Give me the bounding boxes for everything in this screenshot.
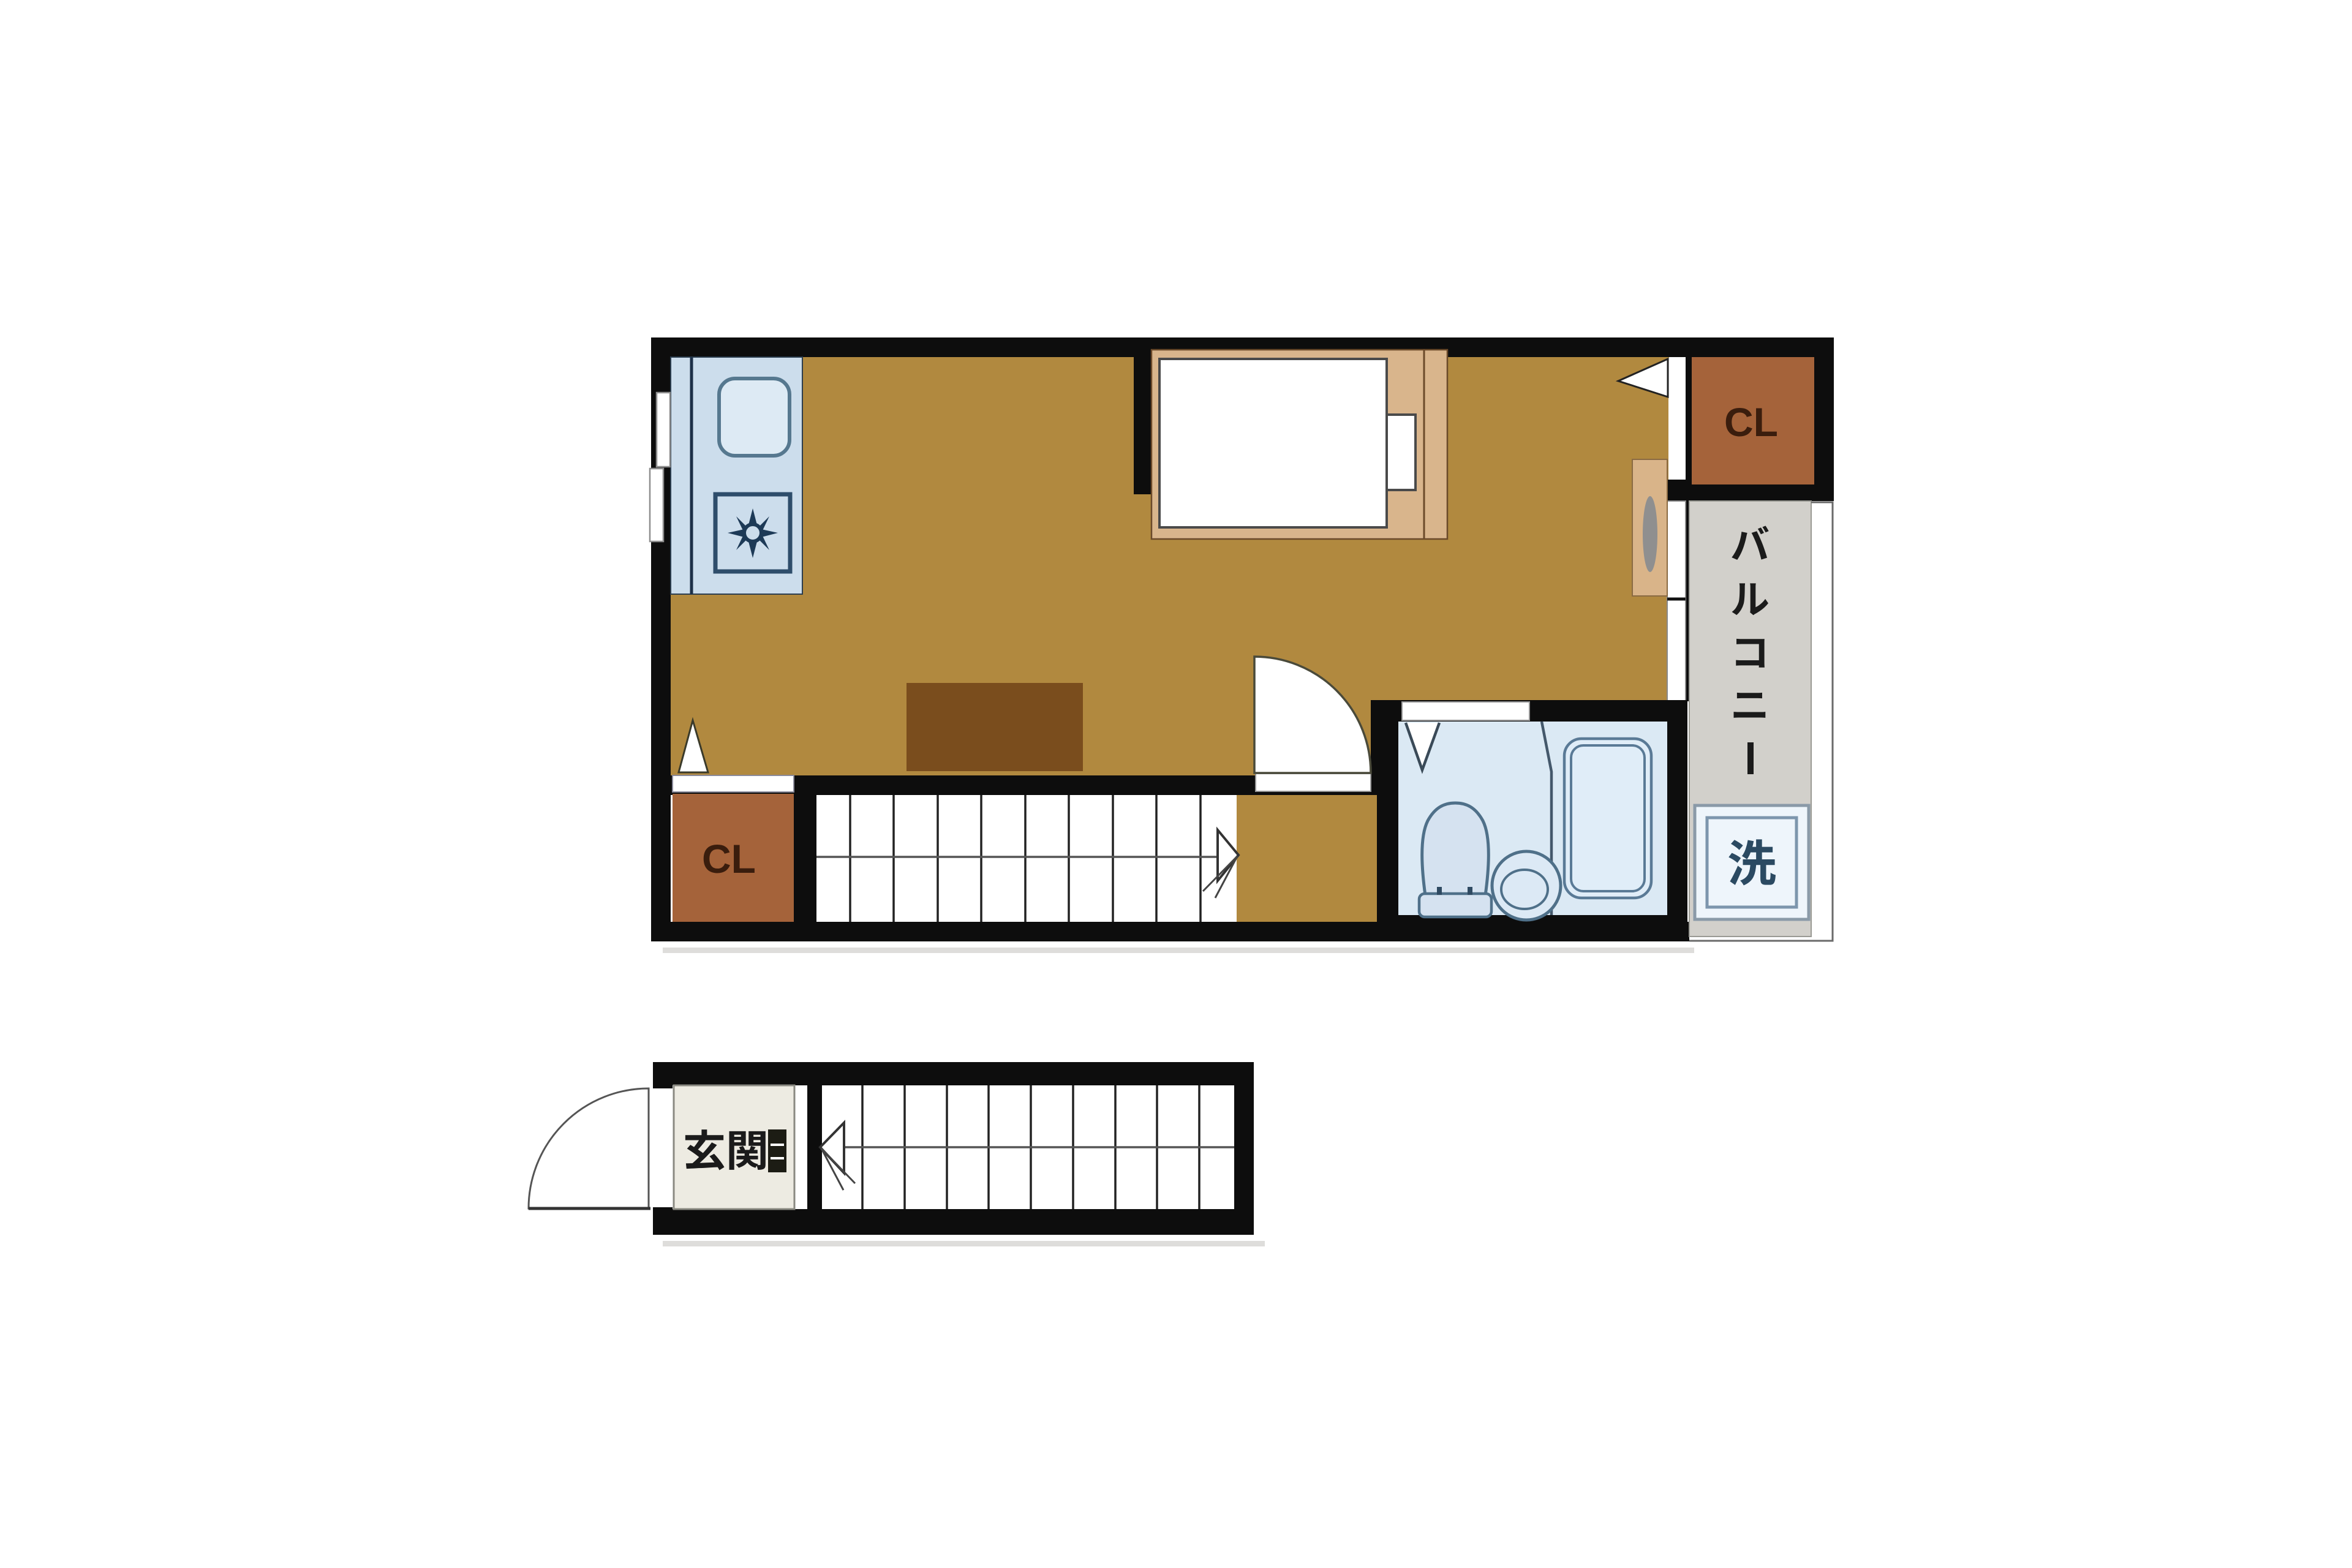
svg-text:CL: CL xyxy=(702,836,756,881)
svg-text:CL: CL xyxy=(1724,399,1778,445)
